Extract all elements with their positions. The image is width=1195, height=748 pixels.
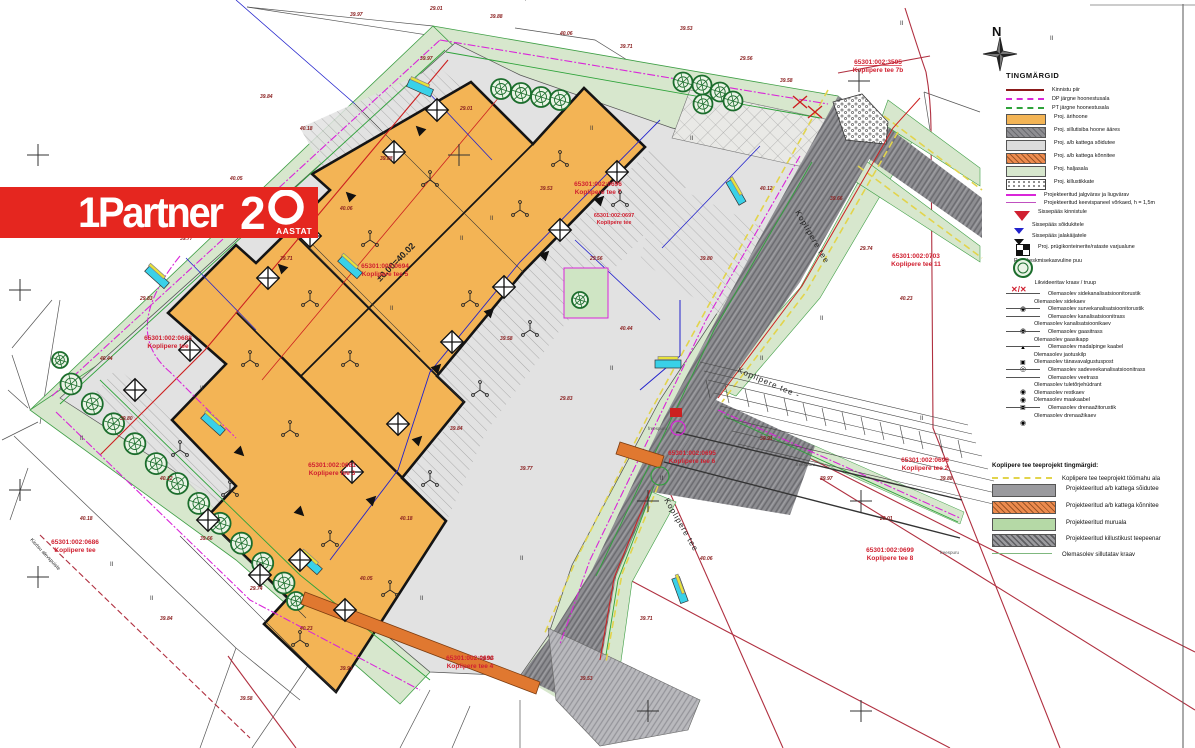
svg-text:39.84: 39.84 bbox=[260, 94, 273, 100]
svg-text:II: II bbox=[460, 236, 464, 242]
svg-text:39.71: 39.71 bbox=[280, 256, 293, 262]
svg-text:N: N bbox=[992, 24, 1001, 39]
svg-text:29.74: 29.74 bbox=[249, 586, 263, 592]
svg-text:II: II bbox=[110, 562, 114, 568]
svg-text:II: II bbox=[590, 126, 594, 132]
svg-text:39.58: 39.58 bbox=[240, 696, 253, 702]
svg-text:II: II bbox=[760, 356, 764, 362]
svg-text:40.18: 40.18 bbox=[299, 126, 313, 132]
svg-text:39.97: 39.97 bbox=[820, 476, 833, 482]
svg-text:40.12: 40.12 bbox=[159, 476, 173, 482]
svg-text:Koplipere tee 7b: Koplipere tee 7b bbox=[853, 67, 904, 74]
svg-text:40.05: 40.05 bbox=[359, 576, 373, 582]
svg-text:65301:002:0686: 65301:002:0686 bbox=[51, 539, 99, 546]
svg-text:39.88: 39.88 bbox=[940, 476, 953, 482]
svg-text:39.97: 39.97 bbox=[350, 12, 363, 18]
svg-text:freespuru: freespuru bbox=[796, 462, 816, 467]
svg-text:29.56: 29.56 bbox=[739, 56, 753, 62]
svg-text:29.74: 29.74 bbox=[859, 246, 873, 252]
svg-text:freespuru: freespuru bbox=[940, 550, 960, 555]
svg-text:II: II bbox=[490, 216, 494, 222]
svg-text:Koplipere tee 8: Koplipere tee 8 bbox=[867, 555, 914, 562]
svg-text:II: II bbox=[200, 386, 204, 392]
svg-text:II: II bbox=[900, 21, 904, 27]
svg-text:29.83: 29.83 bbox=[559, 396, 573, 402]
svg-text:29.01: 29.01 bbox=[459, 106, 473, 112]
svg-text:65301:002:0698: 65301:002:0698 bbox=[901, 457, 949, 464]
svg-text:Koplipere tee 2: Koplipere tee 2 bbox=[902, 465, 949, 472]
svg-text:39.91: 39.91 bbox=[760, 436, 773, 442]
svg-text:39.53: 39.53 bbox=[580, 676, 593, 682]
svg-text:29.01: 29.01 bbox=[429, 6, 443, 12]
svg-text:65301:002:0699: 65301:002:0699 bbox=[866, 547, 914, 554]
svg-text:65301:002:0694: 65301:002:0694 bbox=[361, 263, 409, 270]
svg-text:65301:002:0695: 65301:002:0695 bbox=[668, 450, 716, 457]
svg-text:Koplipere tee: Koplipere tee bbox=[147, 343, 189, 350]
svg-text:II: II bbox=[520, 556, 524, 562]
svg-text:29.01: 29.01 bbox=[879, 516, 893, 522]
svg-text:29.56: 29.56 bbox=[589, 256, 603, 262]
svg-text:65301:002:0693: 65301:002:0693 bbox=[446, 655, 494, 662]
svg-text:65301:002:3595: 65301:002:3595 bbox=[854, 59, 902, 66]
svg-text:40.23: 40.23 bbox=[899, 296, 913, 302]
svg-text:II: II bbox=[610, 366, 614, 372]
svg-text:39.97: 39.97 bbox=[420, 56, 433, 62]
svg-text:II: II bbox=[1050, 36, 1054, 42]
svg-text:65301:002:0703: 65301:002:0703 bbox=[892, 253, 940, 260]
svg-text:39.53: 39.53 bbox=[540, 186, 553, 192]
svg-text:39.80: 39.80 bbox=[120, 416, 133, 422]
svg-text:39.58: 39.58 bbox=[500, 336, 513, 342]
svg-text:39.80: 39.80 bbox=[700, 256, 713, 262]
svg-text:65301:002:0696: 65301:002:0696 bbox=[574, 181, 622, 188]
svg-text:40.18: 40.18 bbox=[399, 516, 413, 522]
svg-text:39.66: 39.66 bbox=[200, 536, 213, 542]
svg-text:II: II bbox=[80, 436, 84, 442]
svg-text:39.84: 39.84 bbox=[450, 426, 463, 432]
svg-text:39.91: 39.91 bbox=[340, 666, 353, 672]
svg-text:Koplipere tee 6: Koplipere tee 6 bbox=[669, 458, 716, 465]
svg-text:40.18: 40.18 bbox=[79, 516, 93, 522]
svg-text:40.12: 40.12 bbox=[759, 186, 773, 192]
svg-text:II: II bbox=[820, 316, 824, 322]
svg-text:39.71: 39.71 bbox=[640, 616, 653, 622]
svg-text:II: II bbox=[390, 306, 394, 312]
svg-text:40.06: 40.06 bbox=[339, 206, 353, 212]
svg-text:Koplipere tee 7: Koplipere tee 7 bbox=[575, 189, 622, 196]
svg-text:39.84: 39.84 bbox=[160, 616, 173, 622]
svg-text:65301:002:0681: 65301:002:0681 bbox=[308, 462, 356, 469]
svg-text:Koplipere tee 3: Koplipere tee 3 bbox=[309, 470, 356, 477]
svg-text:39.88: 39.88 bbox=[380, 156, 393, 162]
svg-text:65301:002:0688: 65301:002:0688 bbox=[144, 335, 192, 342]
svg-text:40.44: 40.44 bbox=[619, 326, 633, 332]
svg-text:Koplipere tee 4: Koplipere tee 4 bbox=[447, 663, 494, 670]
svg-text:Koplipere tee 5: Koplipere tee 5 bbox=[362, 271, 409, 278]
svg-text:II: II bbox=[690, 136, 694, 142]
svg-text:Koplipere tee: Koplipere tee bbox=[54, 547, 96, 554]
svg-text:Koplipere tee 11: Koplipere tee 11 bbox=[891, 261, 941, 268]
svg-text:29.83: 29.83 bbox=[139, 296, 153, 302]
svg-text:39.77: 39.77 bbox=[520, 466, 533, 472]
svg-text:II: II bbox=[150, 596, 154, 602]
svg-text:40.06: 40.06 bbox=[559, 31, 573, 37]
svg-text:freespuru: freespuru bbox=[648, 426, 668, 431]
svg-text:II: II bbox=[920, 416, 924, 422]
svg-text:Koplipere tee: Koplipere tee bbox=[597, 220, 632, 226]
svg-text:39.66: 39.66 bbox=[830, 196, 843, 202]
svg-text:40.23: 40.23 bbox=[299, 626, 313, 632]
svg-text:39.58: 39.58 bbox=[780, 78, 793, 84]
svg-text:65301:002:0697: 65301:002:0697 bbox=[594, 213, 634, 219]
svg-text:II: II bbox=[660, 476, 664, 482]
svg-text:40.44: 40.44 bbox=[99, 356, 113, 362]
svg-text:39.88: 39.88 bbox=[490, 14, 503, 20]
svg-text:40.06: 40.06 bbox=[699, 556, 713, 562]
svg-text:39.71: 39.71 bbox=[620, 44, 633, 50]
svg-text:II: II bbox=[420, 596, 424, 602]
svg-text:40.05: 40.05 bbox=[229, 176, 243, 182]
svg-text:39.53: 39.53 bbox=[680, 26, 693, 32]
